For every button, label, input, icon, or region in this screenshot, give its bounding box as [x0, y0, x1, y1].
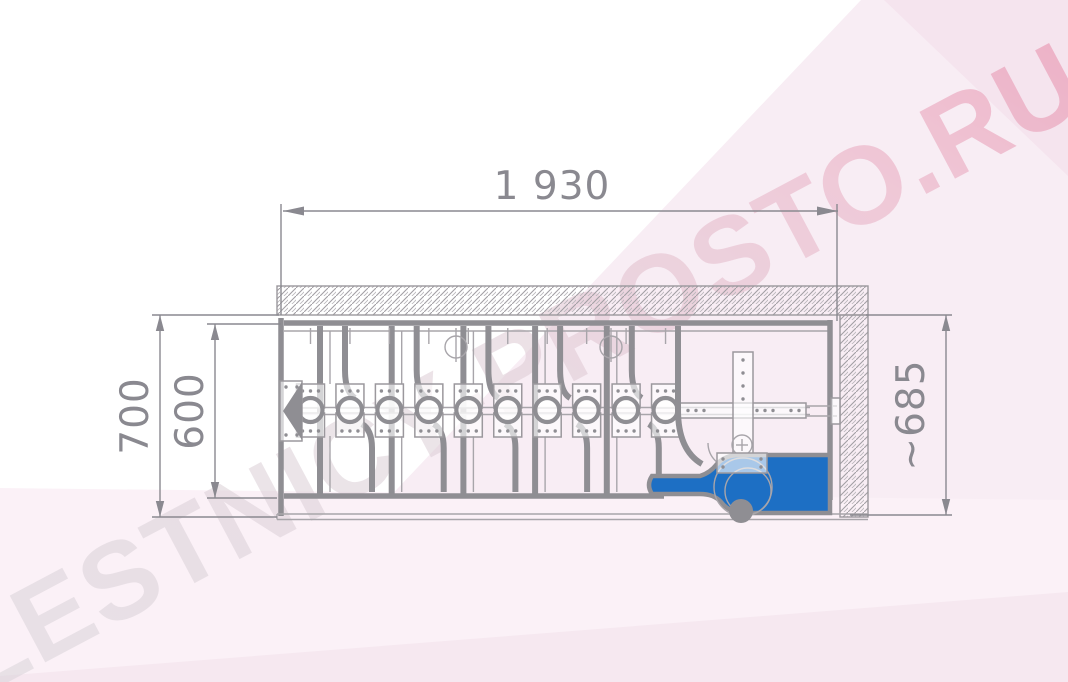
dimension-left-inner-label: 600	[168, 372, 213, 449]
dimension-top-width-label: 1 930	[494, 164, 611, 209]
diagram-canvas: LESTNICY-PROSTO.RU	[0, 0, 1068, 682]
latch-knob	[729, 499, 753, 523]
dimension-left-outer-label: 700	[113, 377, 158, 454]
wall-anchor-tab	[831, 398, 840, 424]
left-end-bracket	[280, 381, 302, 441]
wall-hatch-top	[277, 286, 868, 315]
dimension-right-label: ~685	[889, 359, 934, 470]
wall-hatch-right	[840, 315, 868, 517]
latch-plate	[717, 453, 767, 473]
attic-ladder-plan-drawing: LESTNICY-PROSTO.RU	[0, 0, 1068, 682]
